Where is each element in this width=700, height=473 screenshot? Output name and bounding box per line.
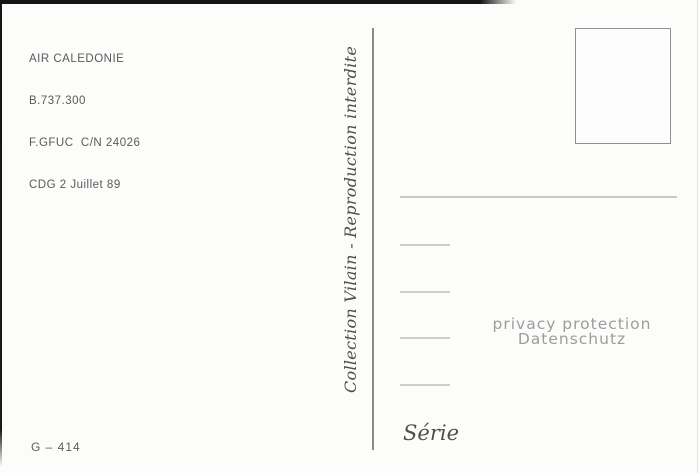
stamp-box (575, 28, 671, 144)
collection-spine-text: Collection Vilain - Reproduction interdi… (341, 81, 363, 393)
address-line-stub (400, 337, 450, 339)
registration-serial: F.GFUC C/N 24026 (29, 136, 140, 150)
privacy-watermark: privacy protection Datenschutz (472, 317, 672, 347)
address-line-stub (400, 291, 450, 293)
publisher-info-block: AIR CALEDONIE B.737.300 F.GFUC C/N 24026… (29, 24, 140, 220)
scan-edge-top (0, 0, 516, 4)
series-label: Série (403, 421, 459, 445)
aircraft-type: B.737.300 (29, 94, 140, 108)
postcard-back: AIR CALEDONIE B.737.300 F.GFUC C/N 24026… (0, 0, 700, 473)
privacy-watermark-line2: Datenschutz (472, 332, 672, 347)
scan-edge-left (0, 0, 2, 467)
address-line-stub (400, 384, 450, 386)
scan-edge-right (697, 0, 698, 473)
location-date: CDG 2 Juillet 89 (29, 178, 140, 192)
catalog-number: G – 414 (31, 440, 81, 454)
center-divider-line (372, 28, 374, 450)
address-line-long (400, 196, 677, 198)
airline-name: AIR CALEDONIE (29, 52, 140, 66)
address-line-stub (400, 244, 450, 246)
